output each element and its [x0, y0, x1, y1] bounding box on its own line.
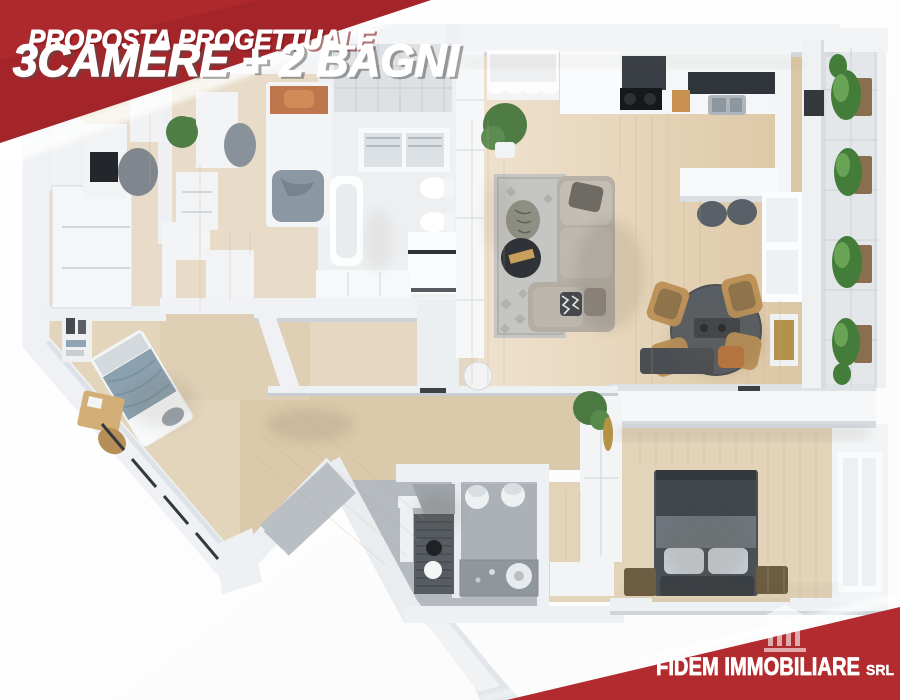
- svg-text:FIDEM IMMOBILIARE: FIDEM IMMOBILIARE: [656, 653, 860, 681]
- svg-text:3CAMERE + 2 BAGNI: 3CAMERE + 2 BAGNI: [13, 35, 460, 86]
- svg-text:SRL: SRL: [866, 662, 894, 679]
